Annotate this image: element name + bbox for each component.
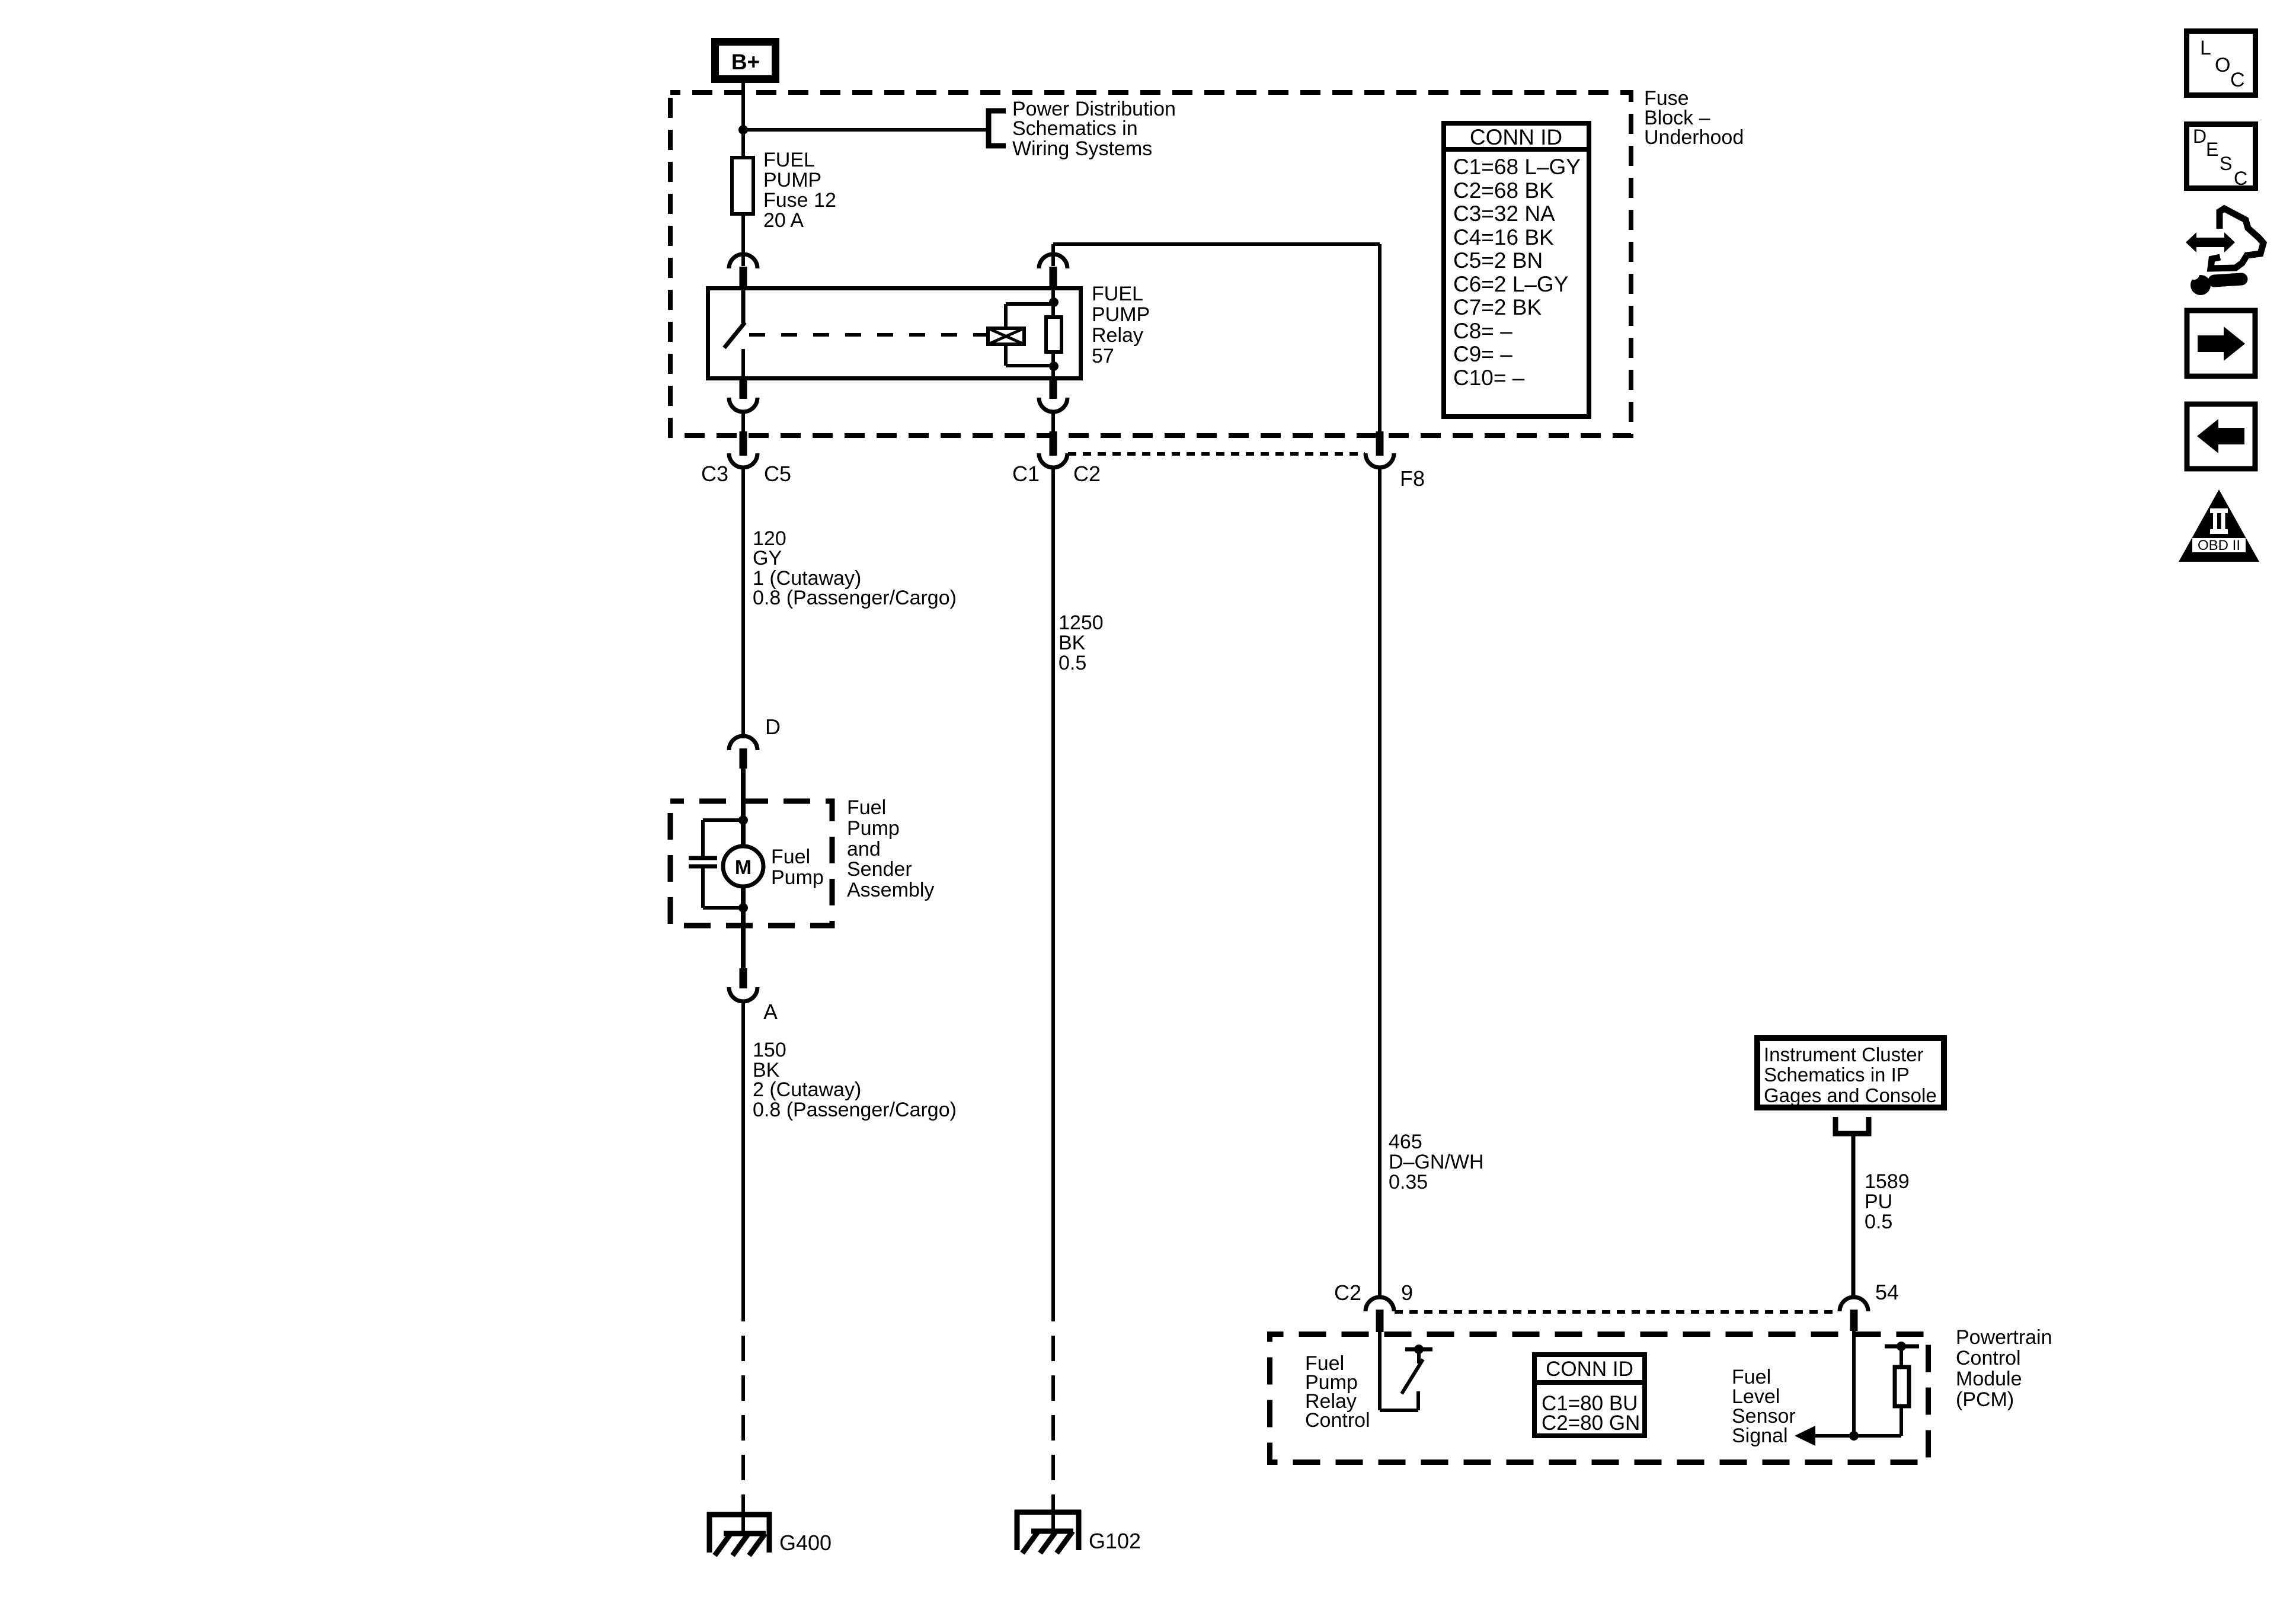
svg-text:and: and bbox=[847, 838, 881, 860]
svg-text:C7=2 BK: C7=2 BK bbox=[1453, 295, 1542, 319]
svg-text:O: O bbox=[2215, 54, 2230, 76]
svg-text:FUEL: FUEL bbox=[763, 149, 815, 171]
svg-text:57: 57 bbox=[1092, 345, 1114, 367]
svg-text:Control: Control bbox=[1956, 1347, 2021, 1369]
svg-text:CONN ID: CONN ID bbox=[1546, 1358, 1633, 1381]
svg-text:Signal: Signal bbox=[1732, 1425, 1788, 1447]
svg-text:9: 9 bbox=[1401, 1281, 1413, 1305]
svg-text:C9= –: C9= – bbox=[1453, 342, 1512, 366]
svg-text:C3: C3 bbox=[701, 462, 728, 486]
svg-text:Gages and Console: Gages and Console bbox=[1764, 1084, 1937, 1106]
svg-text:E: E bbox=[2206, 139, 2218, 160]
svg-text:BK: BK bbox=[1059, 632, 1086, 654]
svg-text:C2=68 BK: C2=68 BK bbox=[1453, 178, 1554, 203]
svg-text:0.8 (Passenger/Cargo): 0.8 (Passenger/Cargo) bbox=[753, 1099, 957, 1121]
svg-text:0.35: 0.35 bbox=[1389, 1171, 1428, 1193]
svg-text:(PCM): (PCM) bbox=[1956, 1388, 2014, 1411]
svg-text:Powertrain: Powertrain bbox=[1956, 1326, 2052, 1349]
svg-text:1589: 1589 bbox=[1865, 1170, 1910, 1193]
svg-text:C5: C5 bbox=[764, 462, 791, 486]
svg-text:Schematics in IP: Schematics in IP bbox=[1764, 1064, 1910, 1086]
svg-text:PUMP: PUMP bbox=[1092, 303, 1150, 326]
svg-text:Wiring Systems: Wiring Systems bbox=[1012, 137, 1152, 160]
svg-text:C: C bbox=[2234, 168, 2247, 189]
svg-text:OBD II: OBD II bbox=[2198, 537, 2240, 553]
svg-text:0.8 (Passenger/Cargo): 0.8 (Passenger/Cargo) bbox=[753, 587, 957, 609]
svg-text:C2: C2 bbox=[1073, 462, 1101, 486]
svg-text:Fuse 12: Fuse 12 bbox=[763, 189, 836, 212]
svg-text:F8: F8 bbox=[1400, 466, 1425, 491]
svg-text:FUEL: FUEL bbox=[1092, 283, 1143, 305]
svg-text:C5=2 BN: C5=2 BN bbox=[1453, 248, 1543, 273]
svg-text:Fuel: Fuel bbox=[771, 846, 810, 868]
svg-text:Control: Control bbox=[1305, 1409, 1370, 1432]
svg-text:PU: PU bbox=[1865, 1190, 1892, 1213]
svg-text:Underhood: Underhood bbox=[1644, 126, 1744, 149]
svg-text:Assembly: Assembly bbox=[847, 879, 934, 901]
svg-text:G102: G102 bbox=[1089, 1529, 1141, 1553]
svg-text:D: D bbox=[765, 715, 781, 739]
svg-text:C: C bbox=[2230, 69, 2245, 91]
svg-text:Pump: Pump bbox=[847, 817, 900, 840]
svg-text:Schematics in: Schematics in bbox=[1012, 117, 1138, 140]
svg-text:D–GN/WH: D–GN/WH bbox=[1389, 1151, 1484, 1173]
svg-text:0.5: 0.5 bbox=[1059, 652, 1086, 674]
svg-text:C6=2 L–GY: C6=2 L–GY bbox=[1453, 272, 1568, 296]
svg-text:PUMP: PUMP bbox=[763, 169, 821, 191]
svg-text:G400: G400 bbox=[779, 1531, 832, 1555]
svg-text:465: 465 bbox=[1389, 1131, 1422, 1153]
svg-text:Relay: Relay bbox=[1092, 324, 1143, 347]
svg-text:Pump: Pump bbox=[771, 866, 824, 889]
svg-text:Fuel: Fuel bbox=[847, 796, 886, 819]
svg-text:C10= –: C10= – bbox=[1453, 366, 1525, 390]
svg-text:C1: C1 bbox=[1012, 462, 1040, 486]
svg-text:D: D bbox=[2193, 126, 2207, 147]
svg-text:CONN ID: CONN ID bbox=[1470, 125, 1562, 149]
svg-text:S: S bbox=[2220, 153, 2232, 174]
svg-text:2 (Cutaway): 2 (Cutaway) bbox=[753, 1078, 861, 1101]
svg-text:0.5: 0.5 bbox=[1865, 1211, 1892, 1233]
svg-text:54: 54 bbox=[1875, 1280, 1899, 1304]
svg-text:Module: Module bbox=[1956, 1368, 2022, 1390]
svg-text:B+: B+ bbox=[731, 50, 760, 74]
svg-text:Instrument Cluster: Instrument Cluster bbox=[1764, 1044, 1924, 1065]
svg-text:M: M bbox=[735, 856, 752, 879]
svg-text:20 A: 20 A bbox=[763, 209, 804, 232]
svg-text:A: A bbox=[763, 1000, 778, 1024]
svg-text:C8= –: C8= – bbox=[1453, 319, 1512, 343]
svg-text:C4=16 BK: C4=16 BK bbox=[1453, 225, 1554, 249]
svg-text:150: 150 bbox=[753, 1039, 786, 1061]
svg-text:GY: GY bbox=[753, 547, 782, 569]
svg-text:C2=80 GN: C2=80 GN bbox=[1542, 1411, 1640, 1435]
svg-text:C1=68 L–GY: C1=68 L–GY bbox=[1453, 155, 1581, 179]
svg-text:C3=32 NA: C3=32 NA bbox=[1453, 201, 1555, 226]
svg-text:L: L bbox=[2200, 37, 2211, 59]
svg-text:Sender: Sender bbox=[847, 858, 912, 881]
svg-text:1250: 1250 bbox=[1059, 612, 1104, 634]
svg-text:C2: C2 bbox=[1334, 1281, 1361, 1305]
